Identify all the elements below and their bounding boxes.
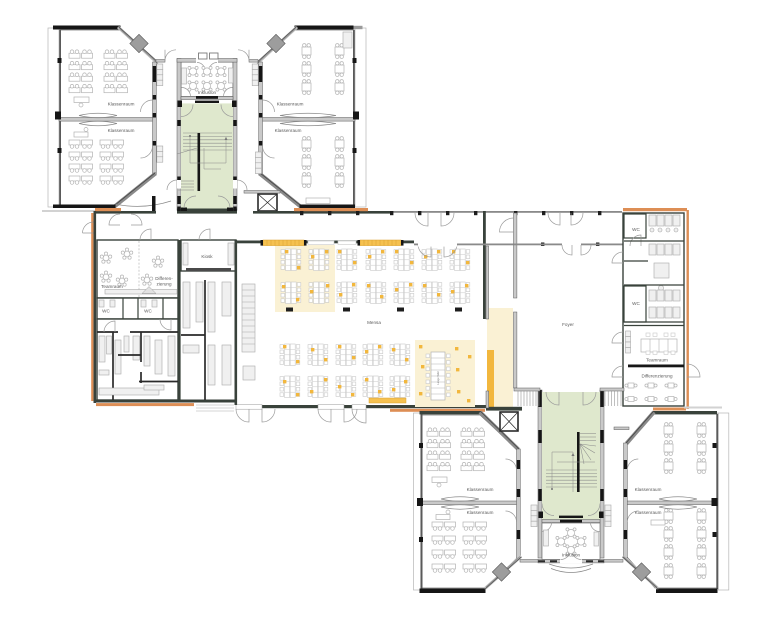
svg-text:Foyer: Foyer xyxy=(562,322,574,327)
svg-text:WC: WC xyxy=(632,301,640,306)
svg-text:WC: WC xyxy=(144,309,152,314)
svg-text:Differen-: Differen- xyxy=(155,276,173,281)
svg-text:Klassenraum: Klassenraum xyxy=(277,102,304,107)
svg-text:Differenzierung: Differenzierung xyxy=(641,374,673,379)
svg-text:zierung: zierung xyxy=(156,282,172,287)
svg-text:Klassenraum: Klassenraum xyxy=(275,128,302,133)
svg-text:Mensa: Mensa xyxy=(367,320,381,325)
svg-text:Teamraum: Teamraum xyxy=(646,358,668,363)
svg-text:Teamraum: Teamraum xyxy=(101,284,123,289)
svg-text:Klassenraum: Klassenraum xyxy=(467,487,494,492)
svg-text:Kiosk: Kiosk xyxy=(201,254,213,259)
svg-text:Inklusion: Inklusion xyxy=(198,90,217,95)
svg-text:Klassenraum: Klassenraum xyxy=(108,102,135,107)
svg-text:Klassenraum: Klassenraum xyxy=(108,128,135,133)
svg-text:WC: WC xyxy=(102,309,110,314)
svg-text:Klassenraum: Klassenraum xyxy=(635,487,662,492)
svg-text:Inklusion: Inklusion xyxy=(562,553,581,558)
svg-text:Lange Tafel: Lange Tafel xyxy=(436,371,440,385)
svg-text:Klassenraum: Klassenraum xyxy=(635,510,662,515)
svg-text:WC: WC xyxy=(632,227,640,232)
svg-text:Klassenraum: Klassenraum xyxy=(467,510,494,515)
